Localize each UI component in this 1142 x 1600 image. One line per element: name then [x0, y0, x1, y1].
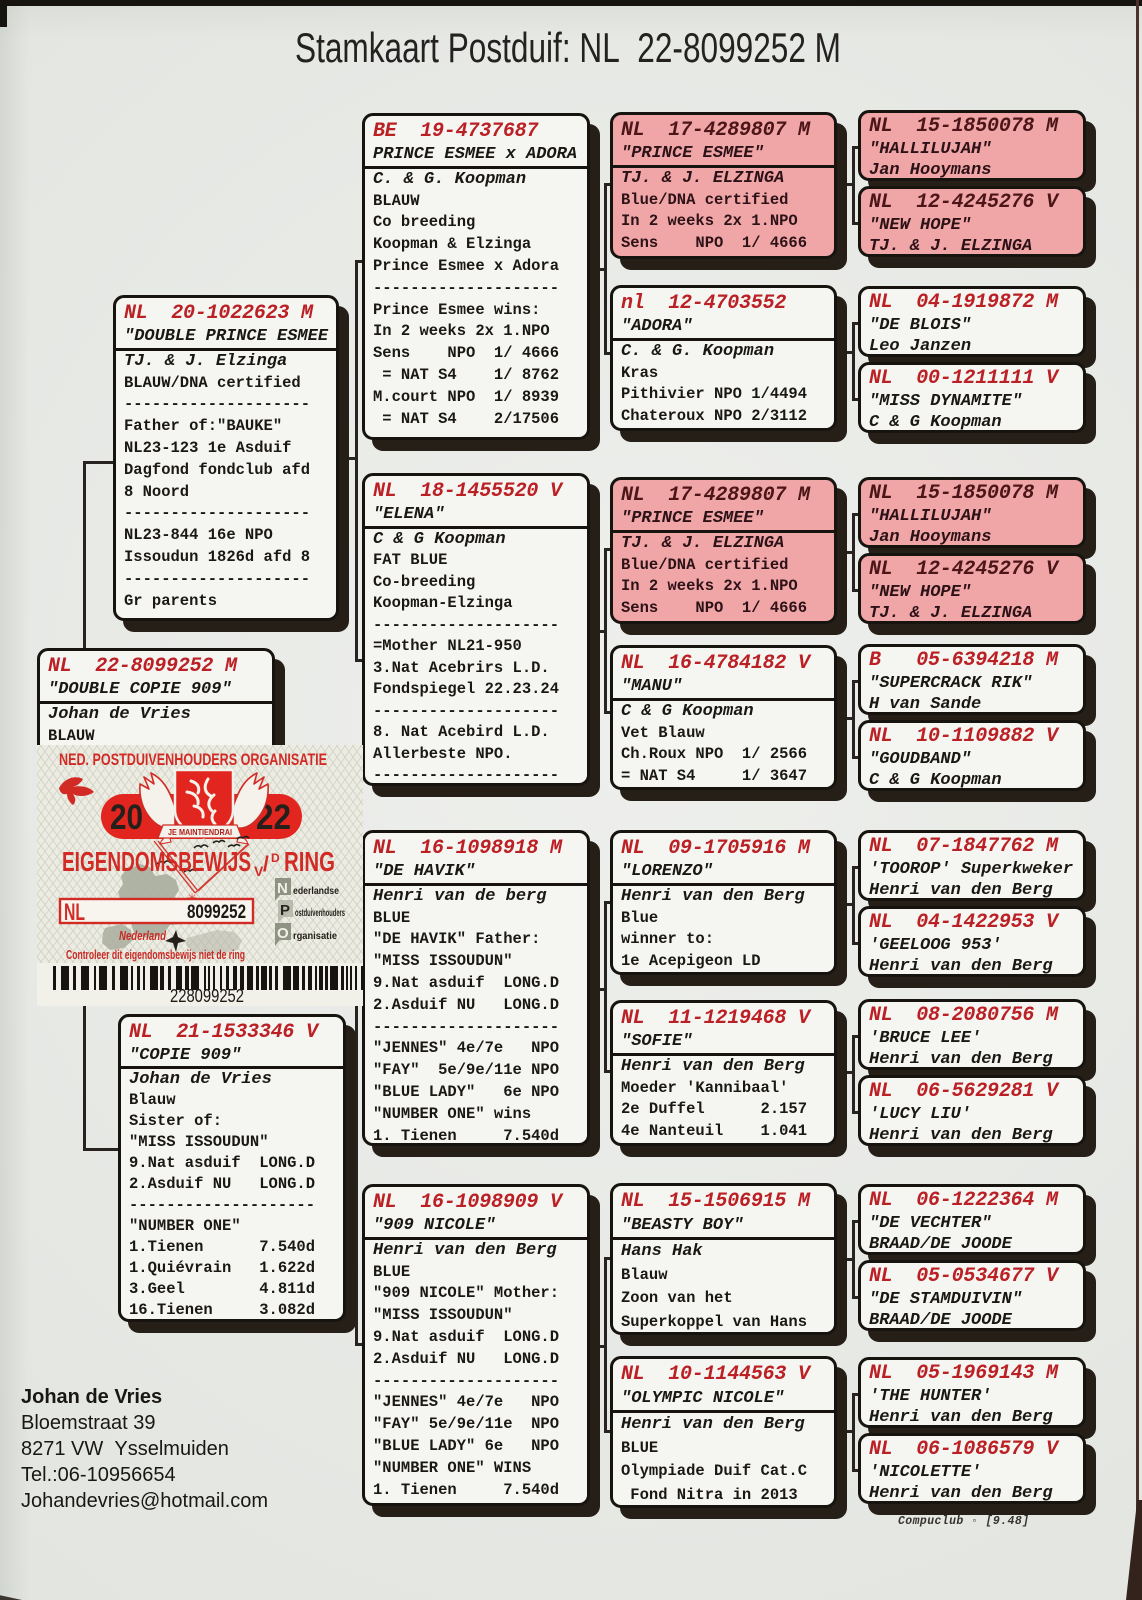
svg-text:NED. POSTDUIVENHOUDERS ORGANIS: NED. POSTDUIVENHOUDERS ORGANISATIE [59, 750, 327, 769]
svg-text:O: O [277, 925, 289, 942]
svg-text:RING: RING [284, 846, 335, 877]
svg-text:20: 20 [110, 798, 143, 837]
svg-text:8099252: 8099252 [187, 902, 246, 923]
svg-text:NL: NL [64, 899, 85, 926]
svg-text:D: D [271, 851, 280, 865]
svg-text:N: N [277, 880, 288, 897]
svg-text:/: / [263, 853, 269, 876]
svg-text:ostduivenhouders: ostduivenhouders [295, 908, 345, 919]
svg-text:Controleer dit eigendomsbewijs: Controleer dit eigendomsbewijs niet de r… [66, 947, 245, 962]
svg-text:ederlandse: ederlandse [293, 886, 339, 897]
svg-text:EIGENDOMSBEWIJS: EIGENDOMSBEWIJS [62, 846, 251, 877]
svg-text:P: P [280, 902, 290, 919]
svg-text:228099252: 228099252 [170, 986, 244, 1006]
svg-text:Nederland: Nederland [119, 928, 167, 943]
svg-text:JE MAINTIENDRAI: JE MAINTIENDRAI [168, 827, 232, 837]
svg-text:rganisatie: rganisatie [293, 931, 337, 942]
